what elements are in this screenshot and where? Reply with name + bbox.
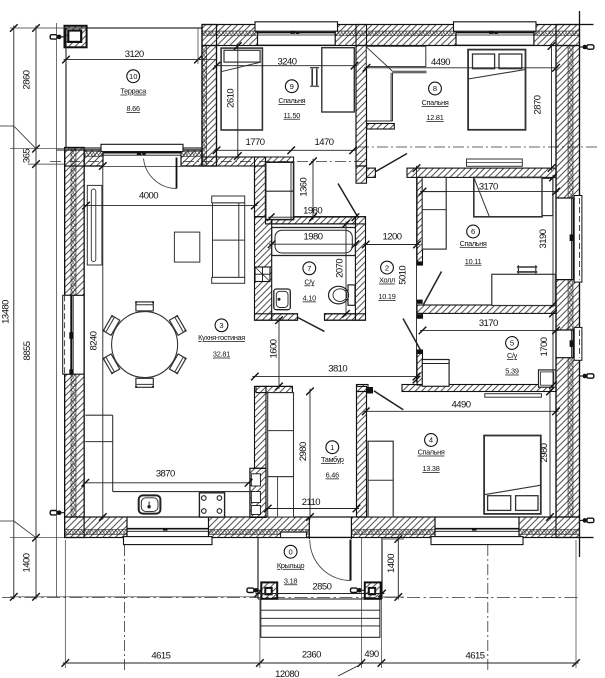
svg-text:3190: 3190 (538, 229, 549, 248)
svg-text:5010: 5010 (398, 266, 409, 285)
svg-text:8855: 8855 (22, 341, 33, 360)
svg-text:7: 7 (307, 264, 311, 273)
svg-text:1600: 1600 (269, 339, 280, 358)
svg-text:Тамбур: Тамбур (321, 455, 344, 464)
svg-text:5.39: 5.39 (505, 367, 519, 376)
svg-text:2: 2 (385, 263, 389, 272)
svg-text:Кухня-гостиная: Кухня-гостиная (198, 333, 245, 342)
svg-text:13480: 13480 (0, 300, 11, 324)
svg-text:1470: 1470 (315, 137, 334, 148)
svg-text:3170: 3170 (479, 318, 498, 329)
svg-text:2850: 2850 (312, 582, 331, 593)
svg-text:4: 4 (429, 436, 433, 445)
svg-text:3170: 3170 (479, 181, 498, 192)
svg-text:3240: 3240 (278, 56, 297, 67)
svg-text:3.18: 3.18 (284, 576, 298, 585)
svg-text:2980: 2980 (298, 442, 309, 461)
svg-text:Холл: Холл (379, 276, 395, 285)
svg-text:1980: 1980 (304, 232, 323, 243)
svg-text:490: 490 (364, 649, 378, 660)
svg-text:8240: 8240 (89, 331, 100, 350)
svg-text:С/у: С/у (507, 351, 518, 360)
svg-text:Спальня: Спальня (422, 98, 449, 107)
svg-text:1400: 1400 (386, 554, 397, 573)
svg-text:0: 0 (288, 547, 292, 556)
svg-text:2870: 2870 (533, 95, 544, 114)
svg-text:13.38: 13.38 (422, 464, 439, 473)
svg-text:5: 5 (510, 339, 514, 348)
svg-text:1400: 1400 (21, 553, 32, 572)
svg-text:12.81: 12.81 (426, 113, 443, 122)
svg-text:1360: 1360 (299, 177, 310, 196)
svg-text:4615: 4615 (151, 651, 170, 662)
svg-text:4.10: 4.10 (303, 294, 317, 303)
svg-text:3870: 3870 (156, 469, 175, 480)
svg-text:6.46: 6.46 (326, 471, 340, 480)
svg-text:Спальня: Спальня (460, 239, 487, 248)
svg-text:С/у: С/у (304, 277, 315, 286)
svg-text:1700: 1700 (539, 337, 550, 356)
svg-text:4615: 4615 (466, 651, 485, 662)
svg-text:10: 10 (129, 72, 137, 81)
svg-text:8.66: 8.66 (126, 104, 140, 113)
svg-text:2610: 2610 (226, 89, 237, 108)
svg-text:2360: 2360 (302, 649, 321, 660)
svg-text:2980: 2980 (539, 443, 550, 462)
svg-text:9: 9 (290, 82, 294, 91)
svg-text:1: 1 (330, 443, 334, 452)
svg-text:6: 6 (471, 227, 475, 236)
svg-text:4000: 4000 (139, 191, 158, 202)
svg-text:2860: 2860 (21, 70, 32, 89)
svg-text:1770: 1770 (246, 137, 265, 148)
svg-text:4490: 4490 (452, 399, 471, 410)
svg-text:2110: 2110 (302, 497, 320, 508)
svg-text:Терраса: Терраса (120, 87, 147, 96)
svg-text:8: 8 (433, 84, 437, 93)
svg-text:11.50: 11.50 (283, 111, 300, 120)
svg-text:4490: 4490 (431, 57, 450, 68)
svg-text:12080: 12080 (275, 669, 299, 678)
svg-text:10.11: 10.11 (465, 257, 482, 266)
svg-text:Спальня: Спальня (278, 96, 305, 105)
svg-text:10.19: 10.19 (378, 292, 395, 301)
svg-text:365: 365 (21, 149, 32, 163)
svg-text:3: 3 (219, 321, 223, 330)
svg-text:3810: 3810 (328, 363, 347, 374)
svg-text:2070: 2070 (334, 259, 345, 278)
svg-text:32.81: 32.81 (213, 350, 230, 359)
svg-text:Крыльцо: Крыльцо (277, 561, 305, 570)
svg-text:Спальня: Спальня (418, 448, 445, 457)
svg-text:1200: 1200 (383, 231, 402, 242)
svg-text:3120: 3120 (125, 49, 144, 60)
